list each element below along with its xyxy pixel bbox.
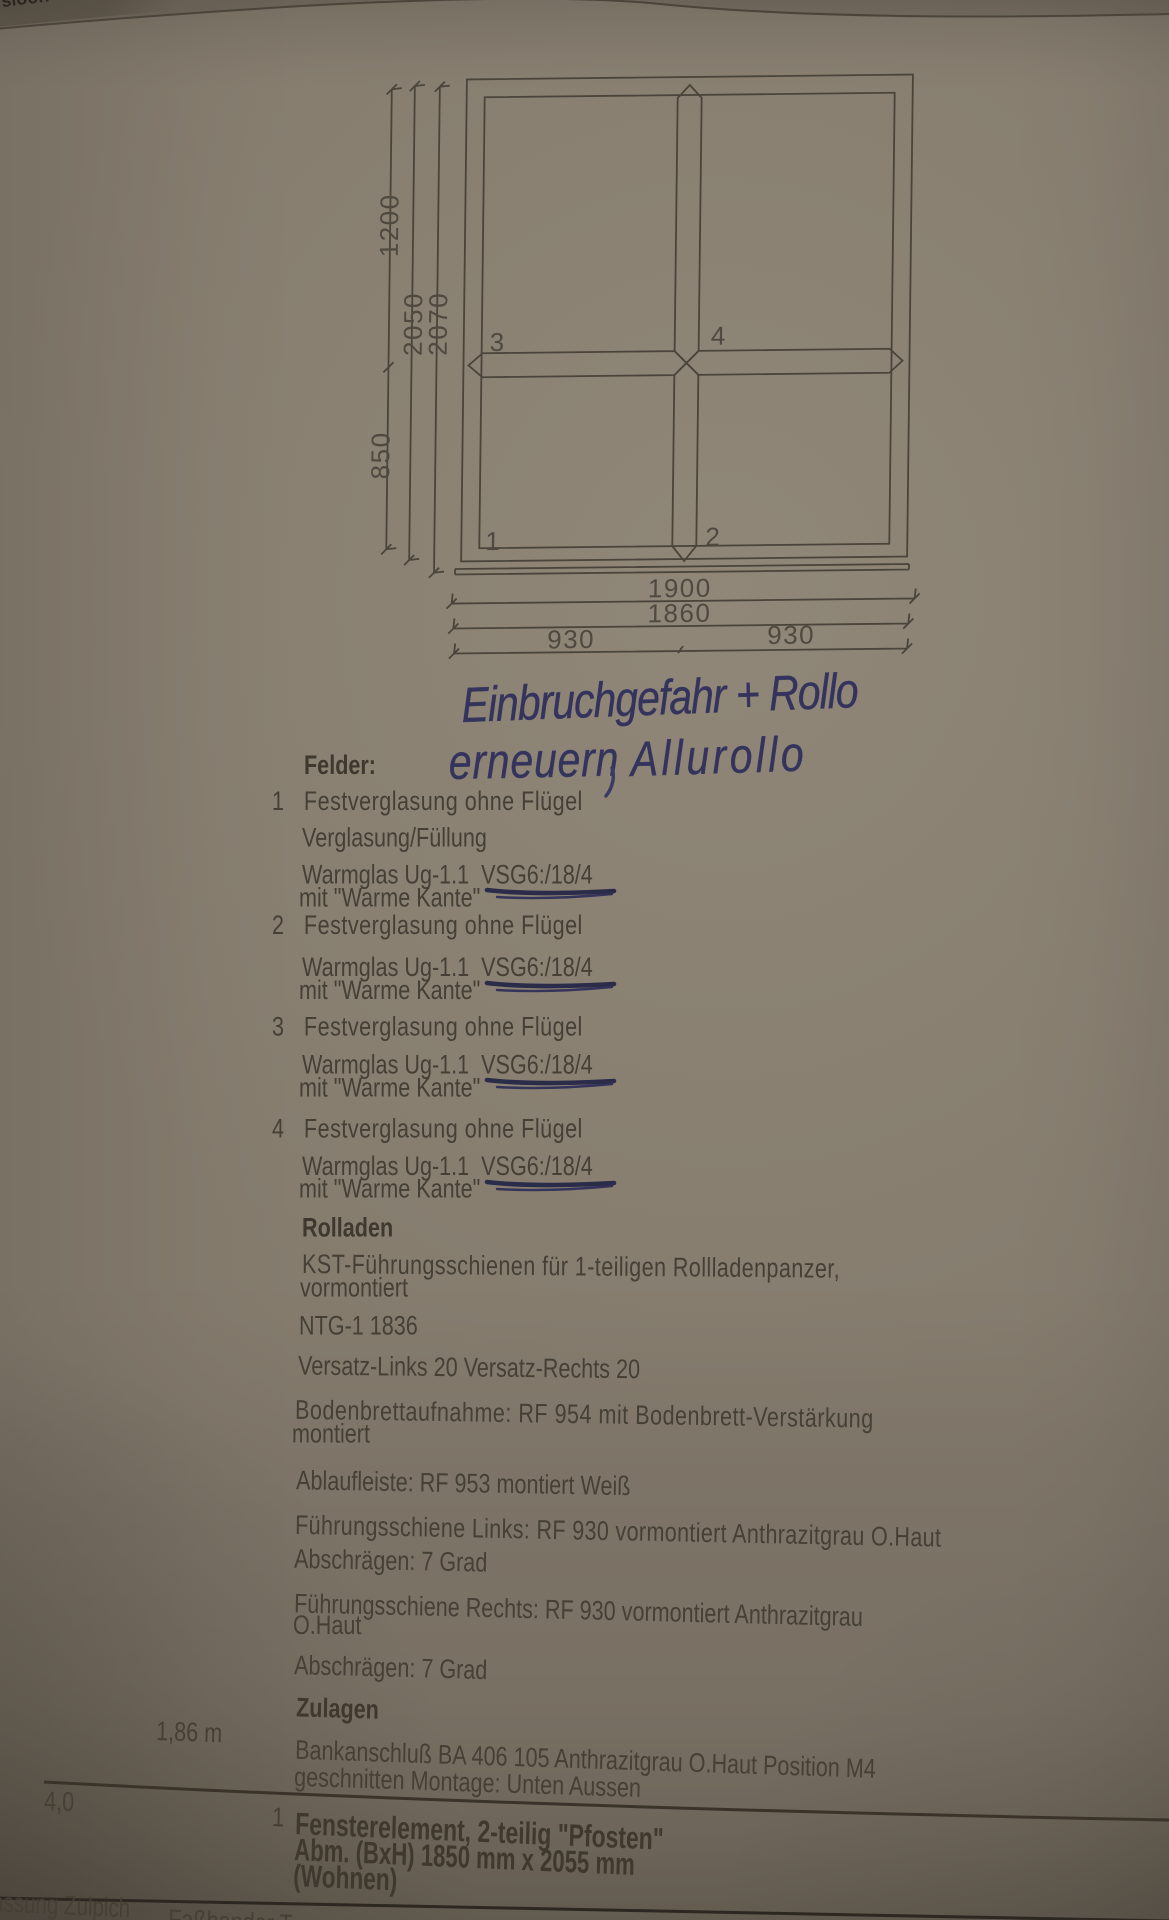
svg-text:Abschrägen: 7 Grad: Abschrägen: 7 Grad (294, 1651, 488, 1686)
svg-text:930: 930 (547, 624, 595, 655)
svg-text:1200: 1200 (374, 193, 405, 257)
svg-text:erneuern: erneuern (448, 731, 619, 790)
svg-text:3 Festverglasung ohne Flügel: 3 Festverglasung ohne Flügel (272, 1012, 583, 1042)
svg-text:1: 1 (485, 526, 501, 556)
svg-text:mit "Warme Kante": mit "Warme Kante" (299, 1073, 480, 1103)
svg-text:4 Festverglasung ohne Flügel: 4 Festverglasung ohne Flügel (272, 1115, 583, 1145)
svg-text:3: 3 (490, 327, 506, 357)
svg-text:mit "Warme Kante": mit "Warme Kante" (299, 976, 480, 1006)
svg-text:1 Festverglasung ohne Flügel: 1 Festverglasung ohne Flügel (272, 787, 583, 817)
svg-text:2: 2 (705, 522, 721, 552)
svg-text:4: 4 (711, 321, 727, 351)
svg-text:2 Festverglasung ohne Flügel: 2 Festverglasung ohne Flügel (272, 911, 583, 941)
svg-text:O.Haut: O.Haut (293, 1611, 362, 1641)
svg-text:mit "Warme Kante": mit "Warme Kante" (299, 1174, 480, 1204)
svg-text:1: 1 (272, 1803, 285, 1833)
svg-text:Verglasung/Füllung: Verglasung/Füllung (302, 823, 487, 853)
svg-text:850: 850 (365, 431, 396, 479)
svg-text:(Wohnen): (Wohnen) (293, 1857, 398, 1897)
svg-text:Zulagen: Zulagen (296, 1693, 379, 1725)
svg-text:Allurollo: Allurollo (627, 726, 807, 787)
svg-text:Felder:: Felder: (304, 751, 376, 781)
svg-text:Versatz-Links 20 Versatz-Recht: Versatz-Links 20 Versatz-Rechts 20 (298, 1351, 640, 1385)
svg-text:1860: 1860 (647, 598, 711, 629)
svg-text:Abschrägen: 7 Grad: Abschrägen: 7 Grad (294, 1545, 488, 1579)
svg-text:Bodenbrettaufnahme: RF 954 mit: Bodenbrettaufnahme: RF 954 mit Bodenbret… (295, 1396, 874, 1435)
svg-text:Einbruchgefahr + Rollo: Einbruchgefahr + Rollo (461, 663, 858, 733)
svg-text:2070: 2070 (423, 292, 454, 356)
svg-text:mit "Warme Kante": mit "Warme Kante" (299, 883, 480, 913)
svg-text:Führungsschiene Rechts: RF 930: Führungsschiene Rechts: RF 930 vormontie… (294, 1589, 863, 1632)
svg-text:montiert: montiert (292, 1419, 370, 1449)
svg-text:NTG-1 1836: NTG-1 1836 (299, 1311, 418, 1341)
svg-text:1,86 m: 1,86 m (156, 1717, 223, 1749)
svg-text:Ablaufleiste: RF 953 montiert: Ablaufleiste: RF 953 montiert Weiß (296, 1466, 631, 1502)
svg-text:vormontiert: vormontiert (300, 1273, 408, 1303)
svg-text:assung Zülpich: assung Zülpich (0, 1887, 131, 1920)
svg-text:4,0: 4,0 (44, 1787, 75, 1818)
svg-text:Rolladen: Rolladen (302, 1213, 393, 1243)
svg-text:Faßbander T: Faßbander T (168, 1905, 293, 1920)
svg-text:930: 930 (767, 620, 815, 651)
